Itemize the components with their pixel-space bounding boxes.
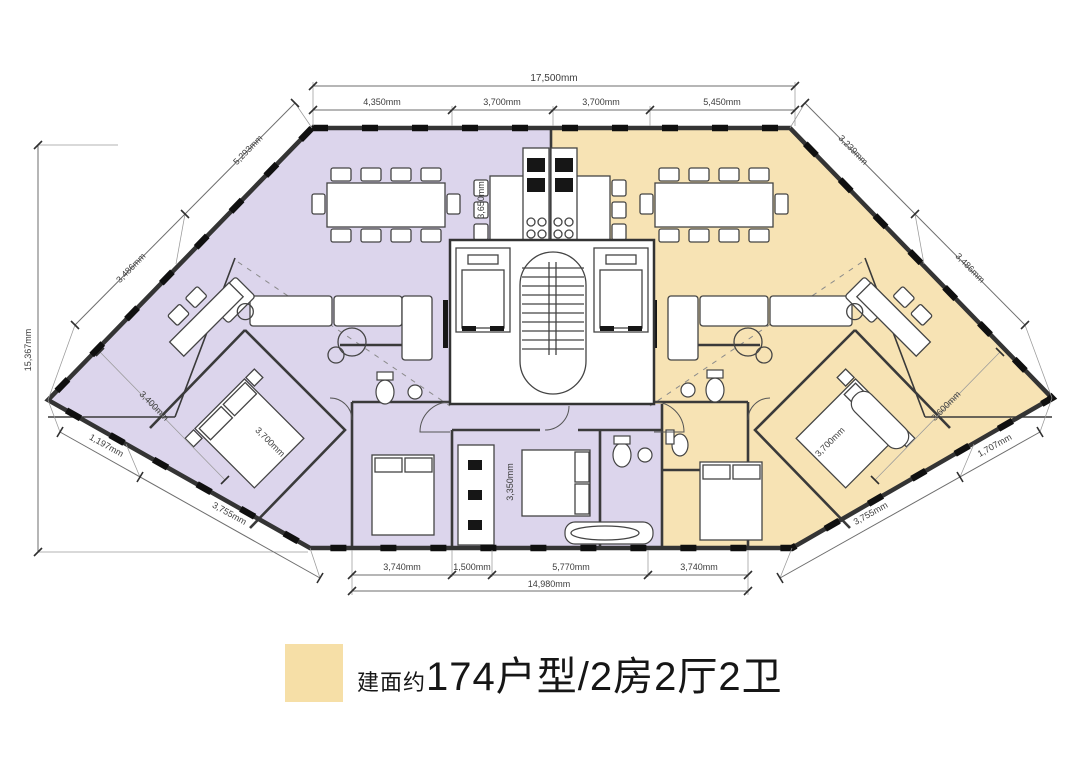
- dim-bottom-overall: 14,980mm: [528, 579, 571, 589]
- dim-left-vertical: 15,367mm: [23, 329, 33, 372]
- dim-bottom-3: 5,770mm: [552, 562, 590, 572]
- legend-color-swatch: [285, 644, 343, 702]
- dim-ur-1: 3,239mm: [836, 133, 869, 167]
- dim-int-kitchen: 3,650mm: [476, 181, 486, 219]
- dim-top-overall: 17,500mm: [530, 73, 577, 84]
- bed-right-second: [700, 462, 762, 540]
- dimension-bottom: 3,740mm 1,500mm 5,770mm 3,740mm 14,980mm: [348, 550, 752, 595]
- dim-ul-1: 5,293mm: [231, 133, 264, 167]
- dim-int-bedroom: 3,350mm: [505, 463, 515, 501]
- legend: 建面约174户型/2房2厅2卫: [285, 644, 783, 702]
- dim-ur-2: 3,486mm: [953, 251, 986, 285]
- dim-top-1: 4,350mm: [363, 97, 401, 107]
- tv-left: [443, 300, 448, 348]
- dim-bottom-1: 3,740mm: [383, 562, 421, 572]
- dim-bottom-4: 3,740mm: [680, 562, 718, 572]
- bed-left-second: [372, 455, 434, 535]
- floor-plan-page: 17,500mm 4,350mm 3,700mm 3,700mm 5,450mm…: [0, 0, 1080, 780]
- legend-prefix: 建面约: [357, 665, 426, 697]
- dimension-top: 17,500mm 4,350mm 3,700mm 3,700mm 5,450mm: [309, 73, 799, 126]
- dim-top-2: 3,700mm: [483, 97, 521, 107]
- core: [450, 240, 654, 404]
- buffet-table-right: [576, 176, 626, 248]
- dim-top-4: 5,450mm: [703, 97, 741, 107]
- dim-bottom-2: 1,500mm: [453, 562, 491, 572]
- dim-top-3: 3,700mm: [582, 97, 620, 107]
- dim-ul-2: 3,486mm: [114, 251, 147, 285]
- legend-title: 174户型/2房2厅2卫: [426, 644, 783, 702]
